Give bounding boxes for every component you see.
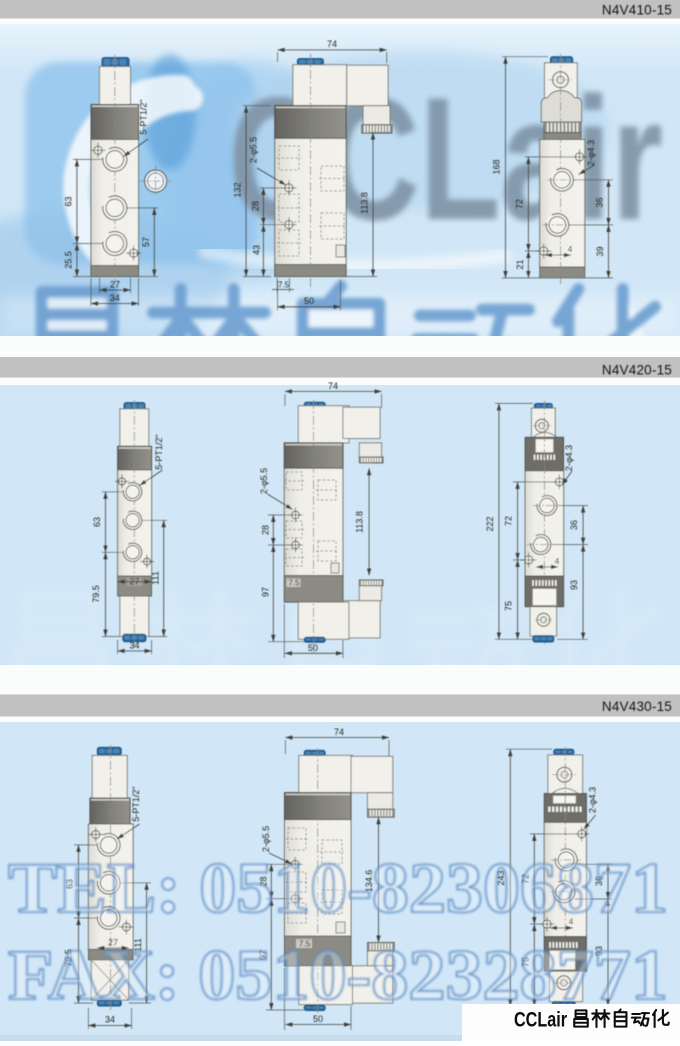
svg-text:7.5: 7.5 <box>278 281 290 290</box>
svg-text:5-PT1/2": 5-PT1/2" <box>154 434 164 469</box>
svg-text:5-PT1/2": 5-PT1/2" <box>139 99 149 134</box>
svg-text:34: 34 <box>105 1015 115 1025</box>
svg-text:93: 93 <box>569 580 579 590</box>
svg-text:N4V430-15: N4V430-15 <box>602 699 672 714</box>
svg-text:4: 4 <box>555 557 560 566</box>
svg-text:28: 28 <box>261 525 271 535</box>
svg-text:63: 63 <box>92 517 102 527</box>
svg-text:79.5: 79.5 <box>91 585 101 603</box>
svg-text:97: 97 <box>261 587 271 597</box>
svg-text:168: 168 <box>492 159 502 174</box>
svg-text:113.8: 113.8 <box>355 511 365 533</box>
svg-text:28: 28 <box>250 201 260 211</box>
svg-text:74: 74 <box>334 727 344 737</box>
svg-text:111: 111 <box>150 571 160 585</box>
svg-text:222: 222 <box>485 516 495 531</box>
svg-text:39: 39 <box>595 246 605 256</box>
svg-text:36: 36 <box>569 520 579 530</box>
svg-text:FAX: 0510-82328771: FAX: 0510-82328771 <box>8 935 668 1015</box>
svg-text:2-φ5.5: 2-φ5.5 <box>249 137 259 163</box>
svg-text:2-φ5.5: 2-φ5.5 <box>259 468 269 494</box>
svg-text:72: 72 <box>504 516 514 526</box>
svg-text:2-φ4.3: 2-φ4.3 <box>564 445 574 471</box>
svg-text:72: 72 <box>515 199 525 209</box>
svg-text:TEL: 0510-82306871: TEL: 0510-82306871 <box>8 848 668 928</box>
svg-text:2-φ4.3: 2-φ4.3 <box>586 140 596 166</box>
svg-text:27: 27 <box>110 280 120 290</box>
svg-text:75: 75 <box>504 601 514 611</box>
svg-text:5-PT1/2": 5-PT1/2" <box>131 786 141 821</box>
svg-text:113.8: 113.8 <box>359 192 369 214</box>
svg-text:34: 34 <box>129 641 139 651</box>
svg-text:7.5: 7.5 <box>288 579 300 588</box>
svg-text:63: 63 <box>64 196 74 206</box>
svg-text:27: 27 <box>129 577 139 587</box>
svg-text:74: 74 <box>327 39 337 49</box>
svg-text:132: 132 <box>233 182 243 197</box>
svg-text:34: 34 <box>110 293 120 303</box>
svg-text:2-φ4.3: 2-φ4.3 <box>588 787 598 813</box>
svg-text:25.5: 25.5 <box>64 251 74 269</box>
svg-text:74: 74 <box>328 381 338 391</box>
svg-text:21: 21 <box>515 259 525 269</box>
svg-text:CCLair: CCLair <box>514 1009 567 1032</box>
svg-text:50: 50 <box>308 643 318 653</box>
svg-text:57: 57 <box>141 237 151 247</box>
svg-text:36: 36 <box>595 197 605 207</box>
svg-text:50: 50 <box>304 296 314 306</box>
svg-text:50: 50 <box>313 1014 323 1024</box>
svg-text:N4V420-15: N4V420-15 <box>602 363 672 378</box>
svg-text:4: 4 <box>568 245 573 254</box>
svg-text:43: 43 <box>252 245 262 255</box>
svg-text:N4V410-15: N4V410-15 <box>602 3 672 18</box>
